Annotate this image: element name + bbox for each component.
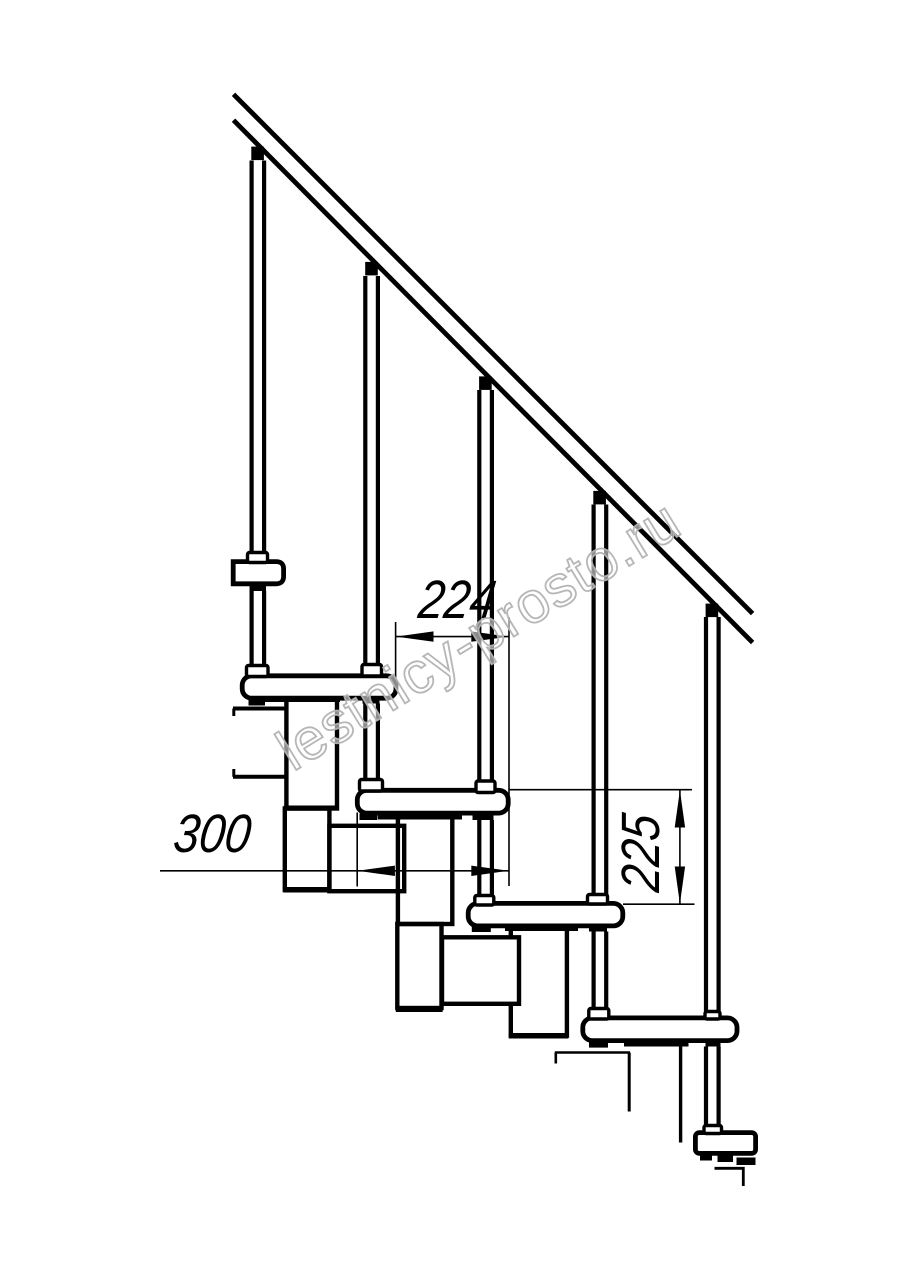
svg-text:225: 225	[610, 809, 671, 895]
svg-text:300: 300	[171, 803, 255, 864]
